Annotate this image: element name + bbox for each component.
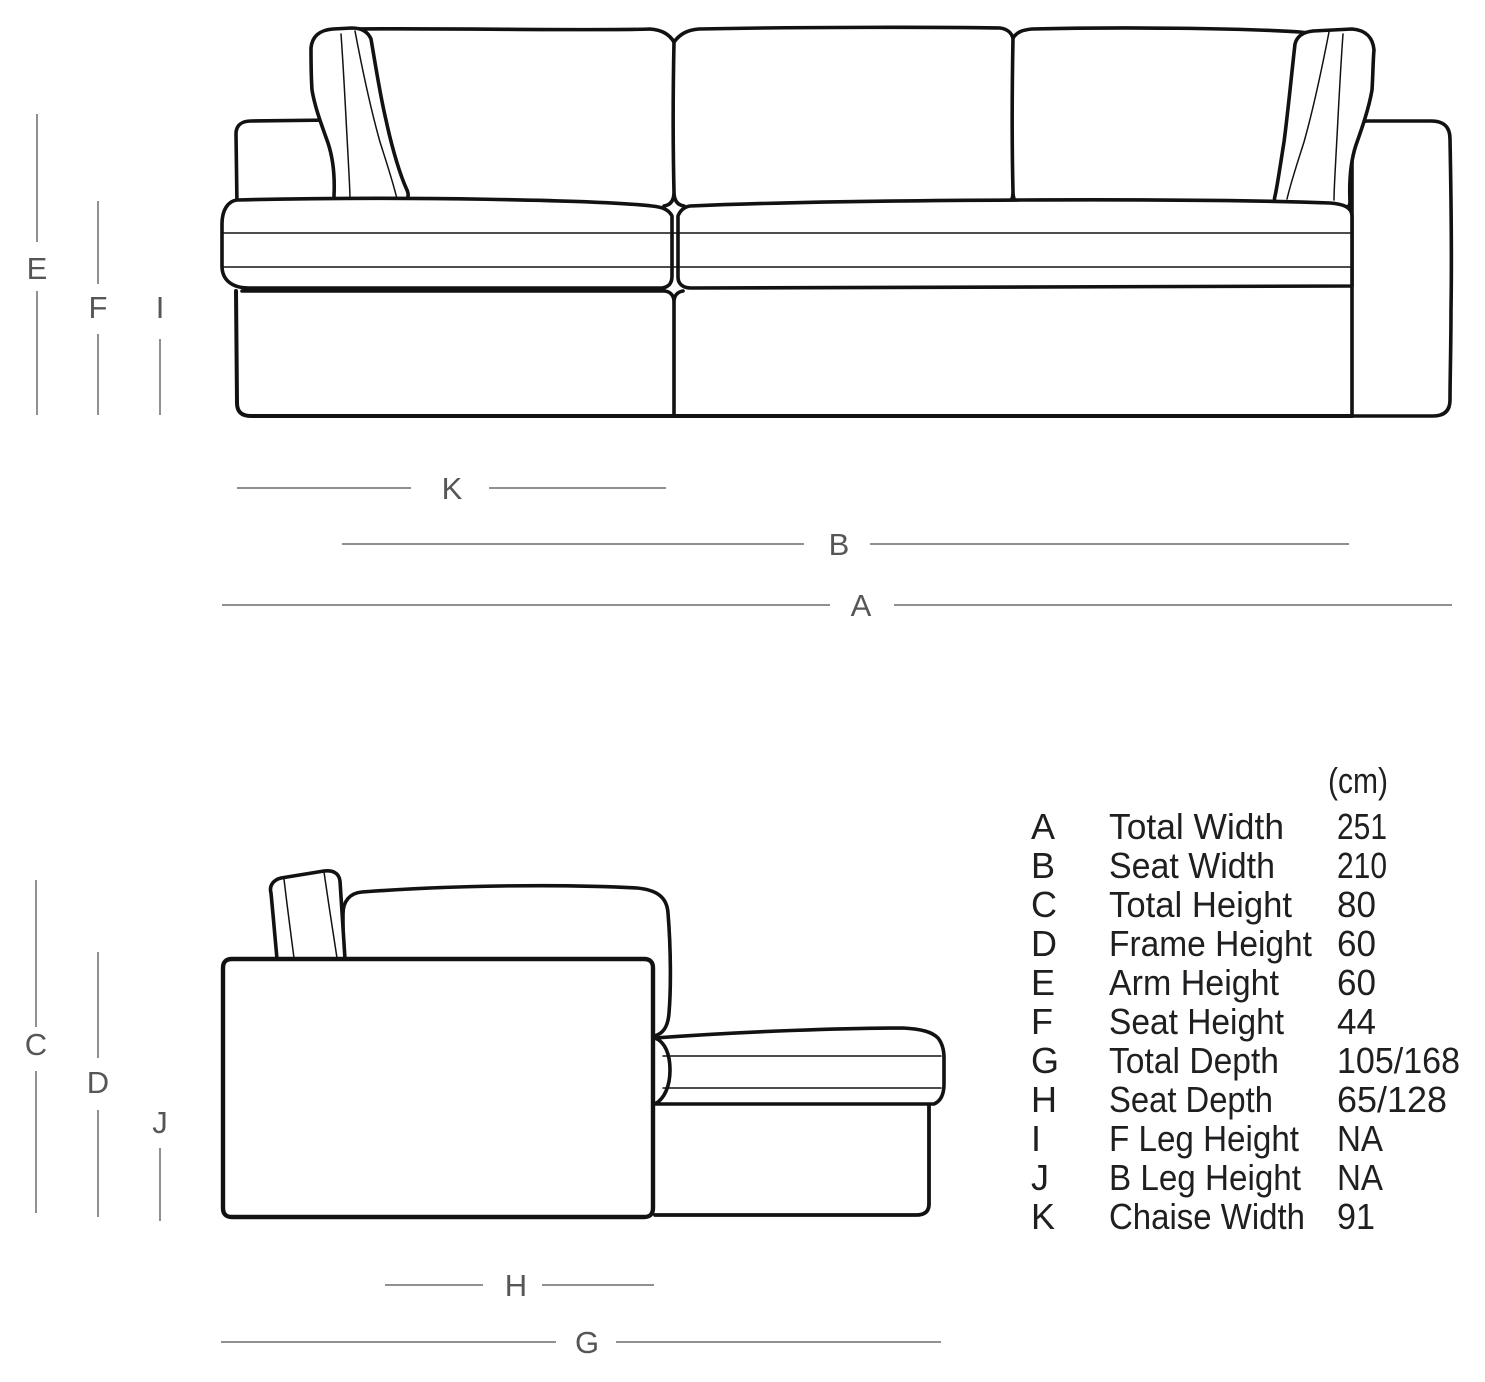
svg-text:60: 60: [1337, 962, 1376, 1003]
svg-text:K: K: [442, 471, 463, 506]
svg-text:NA: NA: [1337, 1118, 1383, 1159]
svg-text:Total Height: Total Height: [1109, 884, 1292, 925]
svg-text:B: B: [829, 527, 850, 562]
svg-text:I: I: [1031, 1118, 1041, 1159]
svg-text:NA: NA: [1337, 1157, 1383, 1198]
svg-text:B: B: [1031, 845, 1055, 886]
svg-text:44: 44: [1337, 1001, 1376, 1042]
svg-text:(cm): (cm): [1328, 760, 1388, 801]
svg-text:H: H: [505, 1268, 527, 1303]
svg-text:Chaise Width: Chaise Width: [1109, 1196, 1305, 1237]
svg-text:Arm Height: Arm Height: [1109, 962, 1279, 1003]
svg-text:J: J: [1031, 1157, 1049, 1198]
svg-text:C: C: [1031, 884, 1057, 925]
svg-text:Total Depth: Total Depth: [1109, 1040, 1279, 1081]
svg-text:K: K: [1031, 1196, 1055, 1237]
svg-text:80: 80: [1337, 884, 1376, 925]
svg-text:D: D: [87, 1065, 109, 1100]
svg-text:B Leg Height: B Leg Height: [1109, 1157, 1301, 1198]
svg-text:91: 91: [1337, 1196, 1375, 1237]
svg-text:210: 210: [1337, 845, 1387, 886]
svg-text:G: G: [1031, 1040, 1059, 1081]
svg-text:Seat Depth: Seat Depth: [1109, 1079, 1273, 1120]
svg-text:I: I: [156, 290, 165, 325]
svg-text:F: F: [1031, 1001, 1053, 1042]
svg-text:60: 60: [1337, 923, 1376, 964]
svg-text:F: F: [89, 290, 108, 325]
svg-text:105/168: 105/168: [1337, 1040, 1460, 1081]
svg-text:E: E: [27, 251, 48, 286]
svg-text:D: D: [1031, 923, 1057, 964]
svg-text:H: H: [1031, 1079, 1057, 1120]
svg-text:65/128: 65/128: [1337, 1079, 1447, 1120]
svg-text:Seat Width: Seat Width: [1109, 845, 1275, 886]
svg-text:251: 251: [1337, 806, 1387, 847]
svg-text:Total Width: Total Width: [1109, 806, 1284, 847]
svg-text:A: A: [851, 588, 872, 623]
svg-text:Frame Height: Frame Height: [1109, 923, 1312, 964]
svg-text:C: C: [25, 1027, 47, 1062]
svg-text:E: E: [1031, 962, 1055, 1003]
svg-text:J: J: [152, 1105, 168, 1140]
svg-text:Seat Height: Seat Height: [1109, 1001, 1284, 1042]
svg-text:A: A: [1031, 806, 1055, 847]
svg-text:G: G: [575, 1325, 599, 1360]
svg-text:F Leg Height: F Leg Height: [1109, 1118, 1299, 1159]
